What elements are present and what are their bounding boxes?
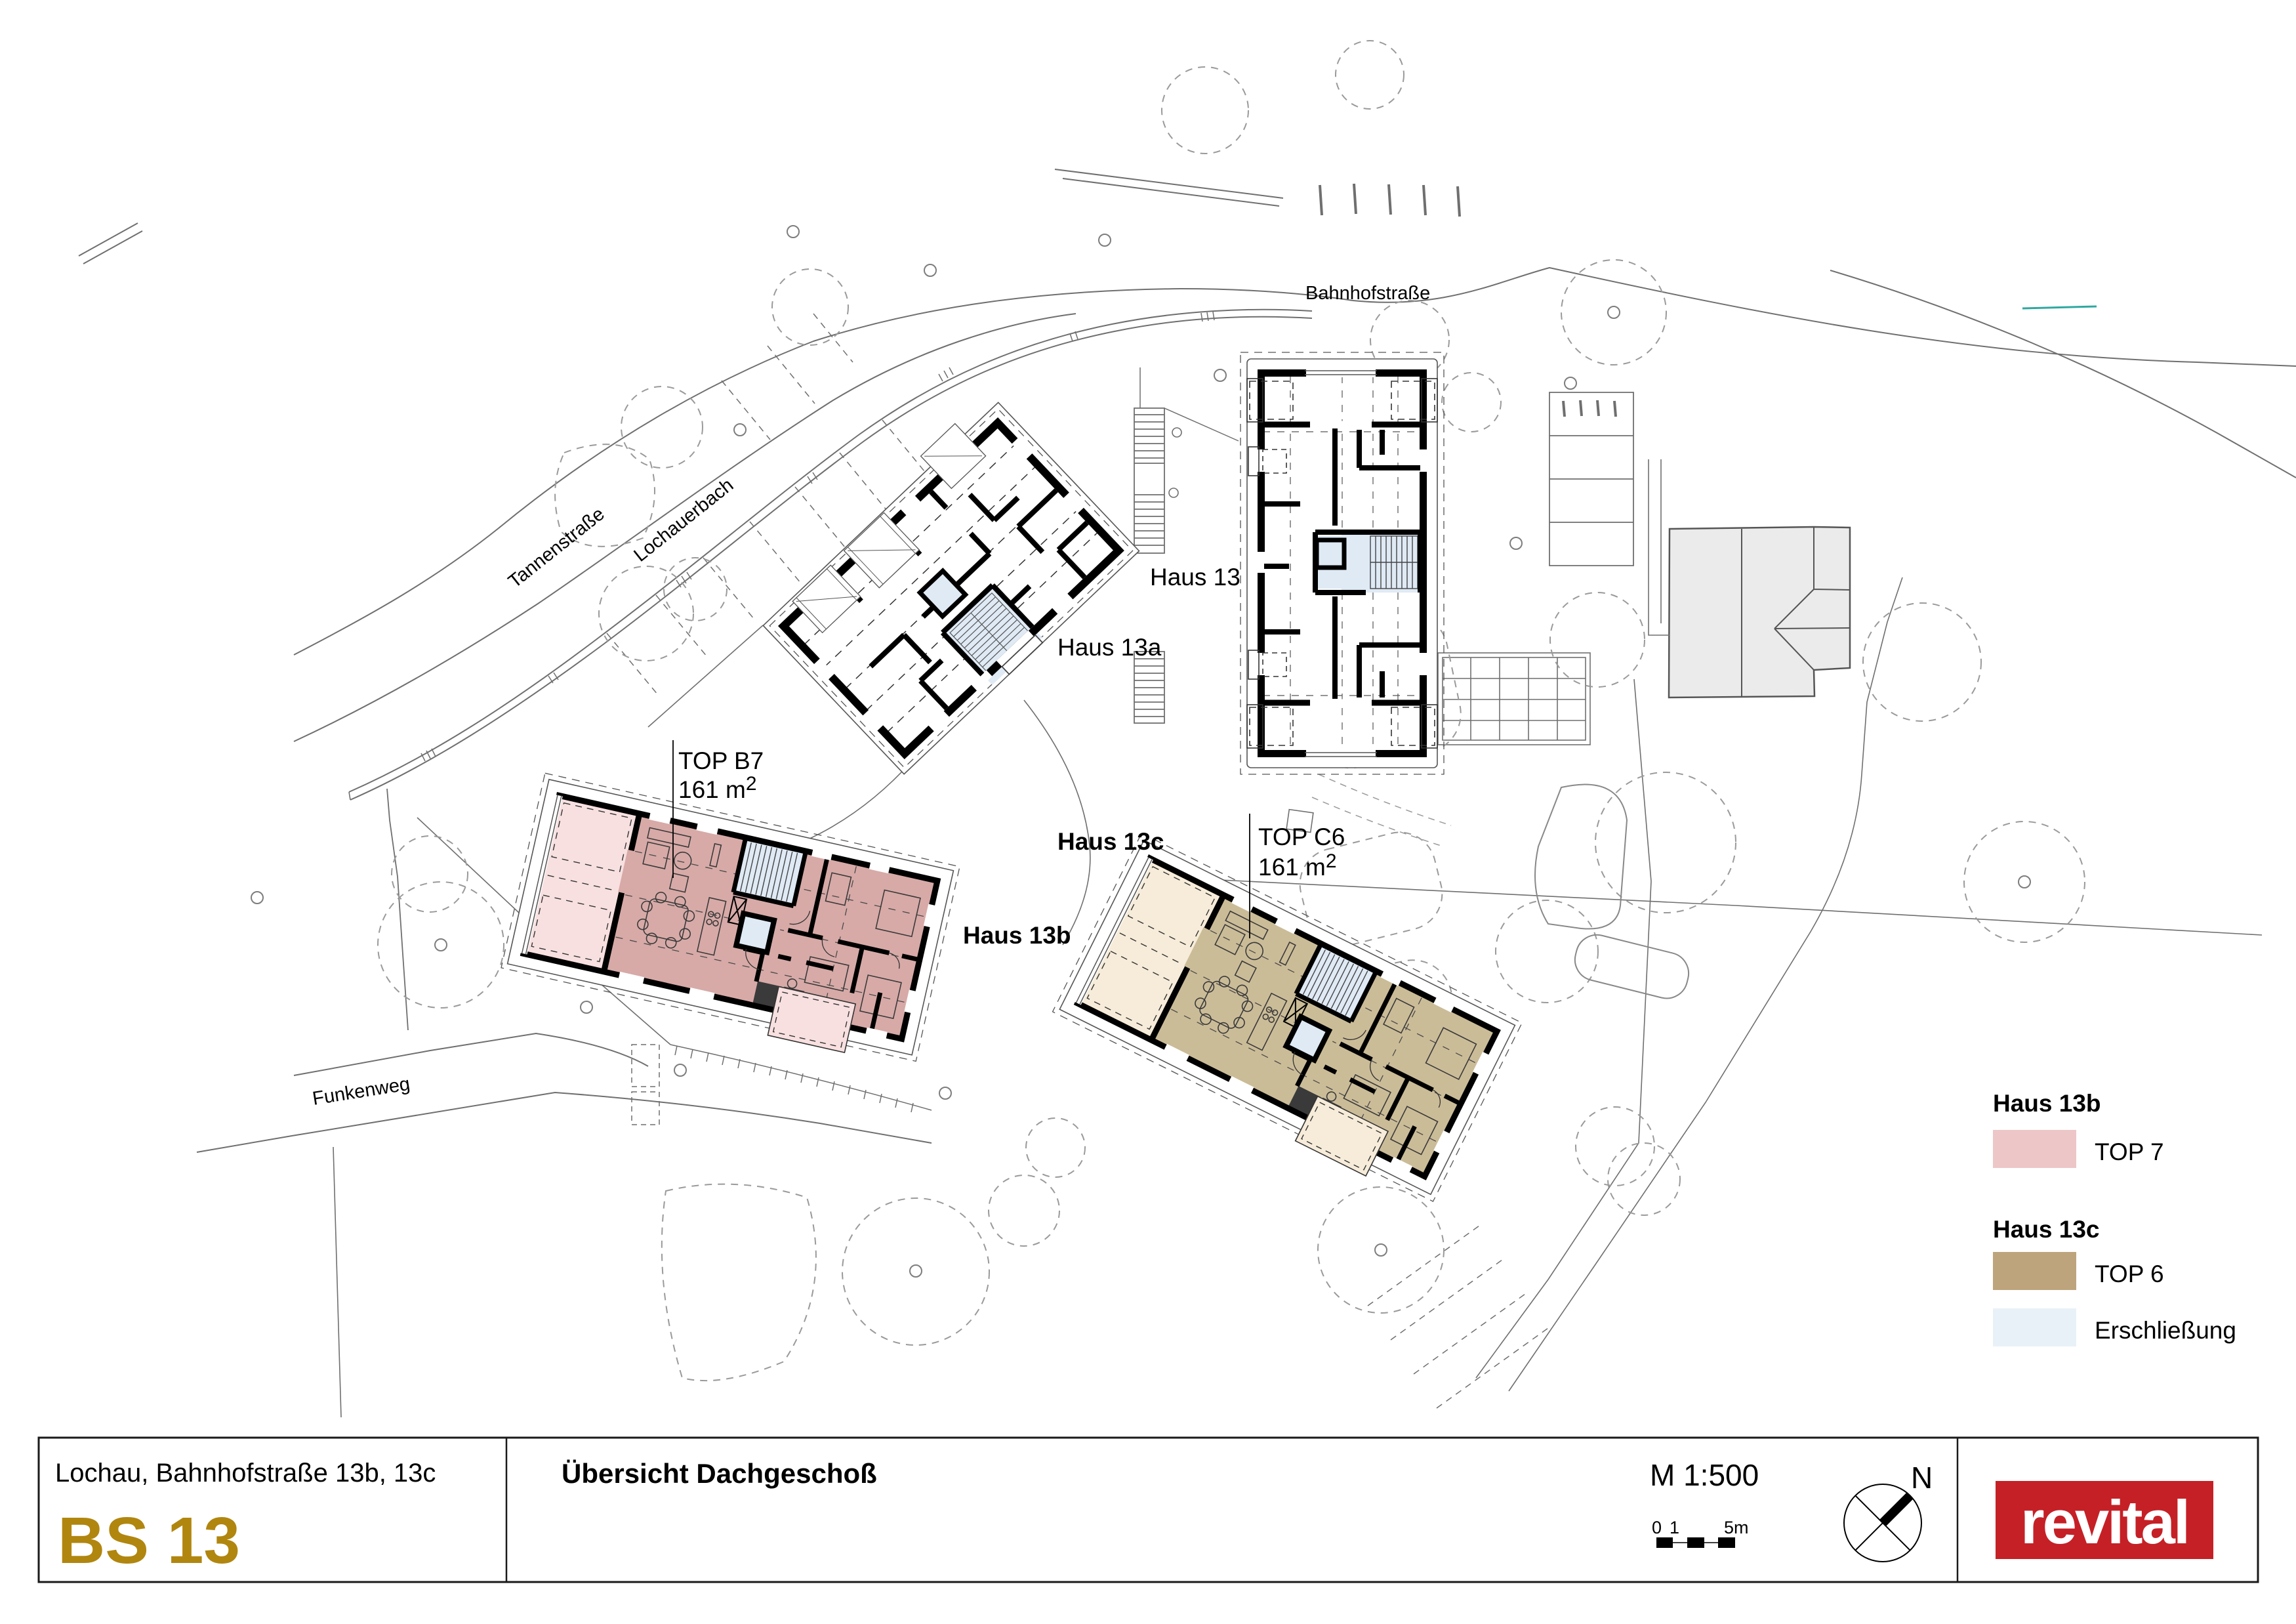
svg-text:Haus 13b: Haus 13b [1993, 1090, 2101, 1117]
svg-text:N: N [1911, 1461, 1933, 1495]
svg-text:Haus 13c: Haus 13c [1057, 828, 1164, 855]
svg-text:TOP C6: TOP C6 [1258, 823, 1345, 850]
svg-text:Haus 13a: Haus 13a [1057, 634, 1162, 661]
svg-text:1: 1 [1670, 1518, 1679, 1537]
svg-text:Bahnhofstraße: Bahnhofstraße [1305, 283, 1430, 304]
svg-text:Haus 13c: Haus 13c [1993, 1216, 2100, 1243]
svg-text:Haus 13b: Haus 13b [963, 922, 1071, 949]
svg-text:Erschließung: Erschließung [2095, 1317, 2236, 1344]
svg-text:161 m2: 161 m2 [1258, 850, 1337, 881]
svg-text:5m: 5m [1724, 1518, 1749, 1537]
svg-text:Lochau, Bahnhofstraße 13b, 13c: Lochau, Bahnhofstraße 13b, 13c [55, 1459, 436, 1488]
svg-text:M 1:500: M 1:500 [1650, 1458, 1759, 1492]
svg-text:revital: revital [2020, 1488, 2188, 1556]
svg-text:TOP B7: TOP B7 [678, 747, 764, 774]
svg-text:TOP 7: TOP 7 [2095, 1138, 2164, 1165]
svg-text:BS 13: BS 13 [58, 1504, 240, 1577]
svg-text:161 m2: 161 m2 [678, 773, 757, 803]
svg-text:Haus 13: Haus 13 [1150, 564, 1240, 591]
svg-text:Übersicht Dachgeschoß: Übersicht Dachgeschoß [562, 1458, 877, 1489]
svg-text:TOP 6: TOP 6 [2095, 1260, 2164, 1287]
svg-text:0: 0 [1652, 1518, 1662, 1537]
